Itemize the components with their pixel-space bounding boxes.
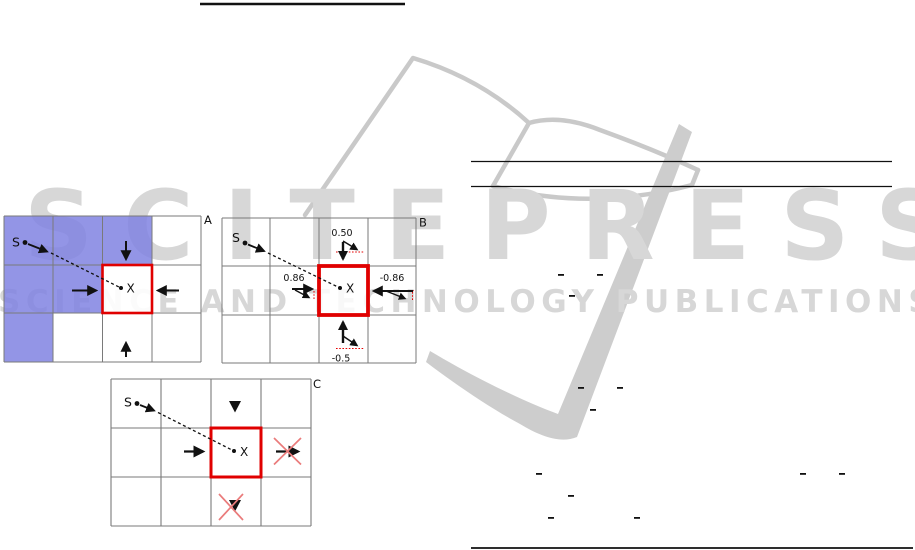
target-cell <box>211 428 261 477</box>
neighbour-bottom: -0.5 <box>332 322 364 365</box>
target-dot <box>232 449 236 453</box>
paper-page: SCITEPRESS SCIENCE AND TECHNOLOGY PUBLIC… <box>0 0 915 550</box>
gradient-arrow <box>386 291 405 299</box>
overline-mark <box>634 517 640 519</box>
highlight-cell <box>4 313 53 362</box>
weight-top: 0.50 <box>331 228 352 239</box>
target-label: X <box>346 282 354 296</box>
overline-mark <box>590 409 596 411</box>
start-label: S <box>124 395 132 410</box>
overline-mark <box>617 387 623 389</box>
start-dot <box>23 240 28 245</box>
target-label: X <box>127 282 135 296</box>
start-arrow <box>248 245 264 252</box>
overline-mark <box>578 387 584 389</box>
overline-mark <box>548 517 554 519</box>
panel-c: S X C <box>111 377 321 526</box>
target-dot <box>338 286 342 290</box>
rejected-direction-right <box>274 438 301 465</box>
rejected-direction-bottom <box>219 494 243 520</box>
neighbour-top: 0.50 <box>331 228 364 259</box>
gradient-arrow <box>295 290 309 298</box>
overline-mark <box>536 473 542 475</box>
gradient-arrow <box>343 336 357 346</box>
overline-mark <box>568 495 574 497</box>
weight-left: 0.86 <box>283 273 304 284</box>
overline-mark <box>839 473 845 475</box>
overline-marks <box>536 274 845 519</box>
start-label: S <box>232 230 240 245</box>
target-dot <box>119 286 123 290</box>
start-label: S <box>12 235 20 250</box>
start-dot <box>135 401 140 406</box>
overline-mark <box>558 274 564 276</box>
weight-bottom: -0.5 <box>332 354 351 365</box>
weight-right: -0.86 <box>380 273 405 284</box>
panel-a: S X A <box>4 213 212 362</box>
panel-b: S X B 0.50 0.86 -0.86 <box>222 216 427 365</box>
panel-label-a: A <box>204 213 212 227</box>
start-arrow <box>140 405 154 411</box>
neighbour-left: 0.86 <box>283 273 314 300</box>
start-dot <box>243 241 248 246</box>
neighbour-right: -0.86 <box>374 273 414 300</box>
gradient-arrow <box>343 241 357 250</box>
target-cell <box>319 266 368 315</box>
panel-label-c: C <box>313 377 321 391</box>
page-rules <box>200 4 913 548</box>
overline-mark <box>800 473 806 475</box>
figure-layer: S X A S X B 0.50 0.86 <box>0 0 915 550</box>
target-label: X <box>240 445 248 459</box>
overline-mark <box>569 295 575 297</box>
panel-label-b: B <box>419 216 427 230</box>
direction-arrowhead-top <box>229 401 241 413</box>
overline-mark <box>597 274 603 276</box>
